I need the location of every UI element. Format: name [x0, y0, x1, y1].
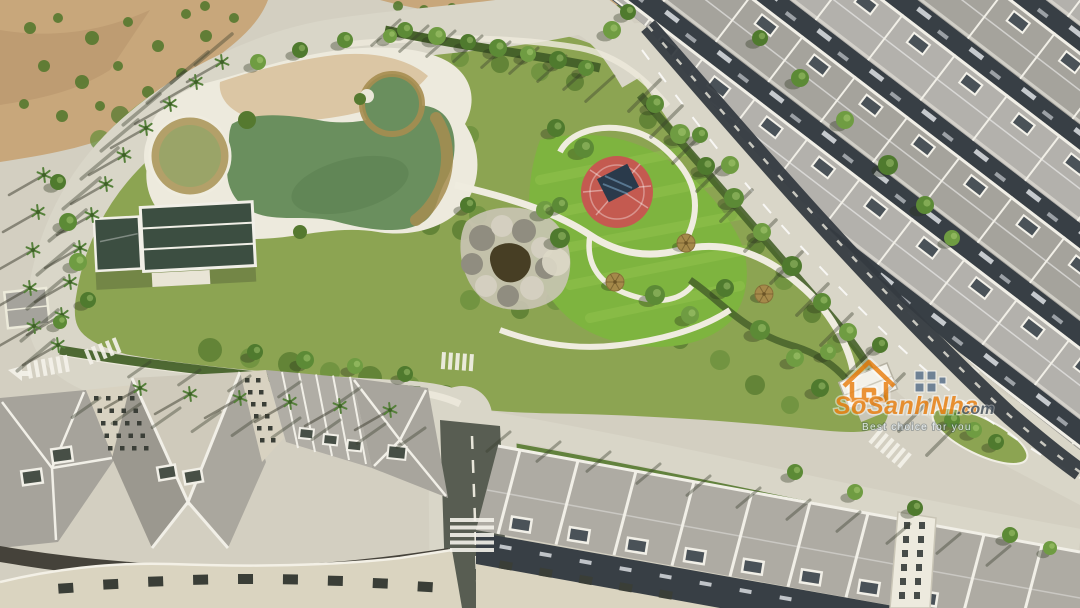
vegetation-cluster — [198, 338, 222, 362]
tree-highlight — [467, 200, 473, 206]
tree-highlight — [559, 200, 565, 206]
tree-highlight — [610, 24, 617, 31]
tree-highlight — [951, 233, 957, 239]
tree-highlight — [704, 160, 711, 167]
skylight — [299, 428, 314, 439]
dormer-window — [510, 517, 532, 533]
grotto-sand — [542, 248, 570, 276]
palm-crown — [68, 280, 72, 284]
vegetation-cluster — [745, 375, 765, 395]
terrace-opening — [148, 576, 163, 587]
small-window — [251, 402, 256, 407]
clubhouse-glass-roof — [140, 202, 255, 272]
terrace-opening — [238, 574, 253, 584]
grotto-rock — [491, 215, 513, 237]
white-tower — [890, 512, 936, 608]
shrub — [38, 60, 50, 72]
palm-crown — [188, 392, 192, 396]
shrub — [200, 30, 212, 42]
tree-highlight — [87, 295, 93, 301]
terrace-opening — [103, 579, 118, 590]
tree-highlight — [995, 437, 1001, 443]
dormer-window — [742, 559, 764, 575]
tree-highlight — [556, 54, 563, 61]
tree-canopy — [1043, 541, 1057, 555]
tree-highlight — [846, 326, 853, 333]
small-window — [256, 378, 261, 383]
zebra-bar — [450, 526, 494, 530]
palm-crown — [122, 153, 126, 157]
shrub — [53, 13, 63, 23]
tower-window — [917, 550, 923, 557]
tree-highlight — [1009, 530, 1015, 536]
small-window — [110, 409, 115, 414]
dormer-window — [858, 580, 880, 596]
tower-window — [900, 578, 906, 585]
tree-highlight — [582, 142, 590, 150]
tower-window — [918, 536, 924, 543]
tree-highlight — [793, 352, 800, 359]
tree-highlight — [723, 282, 730, 289]
watermark-domain: .com — [957, 401, 994, 418]
shrub — [56, 110, 68, 122]
tree-highlight — [827, 347, 833, 353]
small-window — [129, 434, 134, 439]
shrub — [229, 13, 239, 23]
palm-crown — [90, 213, 94, 217]
palm-crown — [288, 400, 292, 404]
grotto-rock — [461, 253, 483, 275]
tree-highlight — [467, 37, 473, 43]
skylight — [51, 447, 73, 464]
tree-highlight — [404, 369, 410, 375]
shrub — [393, 1, 403, 11]
tree-highlight — [303, 354, 310, 361]
grid-square — [927, 371, 936, 380]
palm-crown — [56, 343, 60, 347]
shrub — [24, 22, 36, 34]
palm-crown — [78, 246, 82, 250]
terrace-opening — [283, 574, 298, 584]
tree-highlight — [66, 216, 73, 223]
shrub — [152, 40, 164, 52]
dormer-window — [800, 569, 822, 585]
umbrella-pole — [684, 241, 688, 245]
small-window — [144, 446, 149, 451]
zebra-bar — [450, 541, 494, 545]
shrub — [75, 75, 89, 89]
small-window — [260, 438, 265, 443]
tower-window — [916, 564, 922, 571]
tower-window — [915, 578, 921, 585]
dormer-window — [568, 527, 590, 543]
terrace-opening — [193, 575, 208, 585]
tree-highlight — [344, 35, 350, 41]
tree-highlight — [879, 340, 885, 346]
shrub — [95, 101, 105, 111]
small-window — [259, 390, 264, 395]
tree-highlight — [854, 487, 860, 493]
grid-square — [915, 383, 924, 392]
shrub — [85, 31, 99, 45]
palm-crown — [104, 182, 108, 186]
small-window — [262, 402, 267, 407]
tree-highlight — [886, 159, 894, 167]
aerial-photo: SoSanhNha .com Best choice for you — [0, 0, 1080, 608]
small-window — [125, 421, 130, 426]
grid-square — [915, 371, 924, 380]
shrub — [19, 99, 29, 109]
palm-crown — [144, 126, 148, 130]
palm-crown — [28, 286, 32, 290]
tree-highlight — [732, 192, 740, 200]
grotto-rock — [497, 285, 519, 307]
skylight — [183, 469, 203, 485]
tree-canopy — [53, 315, 67, 329]
clubhouse-west-wing — [94, 217, 142, 271]
tree-highlight — [76, 256, 83, 263]
tree-highlight — [820, 296, 827, 303]
palm-crown — [238, 396, 242, 400]
grotto-rock — [475, 275, 497, 297]
tower-window — [899, 592, 905, 599]
skylight — [323, 434, 338, 445]
terrace-opening — [58, 583, 74, 594]
grotto-rock — [469, 225, 495, 251]
zebra-bar — [450, 533, 494, 537]
tree-highlight — [973, 425, 979, 431]
tree-highlight — [254, 347, 260, 353]
tree-highlight — [389, 31, 395, 37]
tower-window — [919, 522, 925, 529]
small-window — [268, 426, 273, 431]
grid-square — [927, 383, 936, 392]
tree-highlight — [257, 57, 263, 63]
tree-highlight — [496, 42, 503, 49]
small-window — [122, 409, 127, 414]
dormer-window — [626, 538, 648, 554]
shrub — [113, 61, 123, 71]
small-window — [98, 409, 103, 414]
small-window — [137, 421, 142, 426]
umbrella-pole — [613, 280, 617, 284]
tree-highlight — [699, 130, 705, 136]
palm-crown — [220, 60, 224, 64]
tree-highlight — [798, 72, 805, 79]
tree-highlight — [678, 128, 686, 136]
umbrella-pole — [762, 292, 766, 296]
small-window — [120, 446, 125, 451]
small-window — [108, 446, 113, 451]
tree-highlight — [558, 232, 566, 240]
zebra-bar — [450, 548, 494, 552]
dormer-window — [684, 548, 706, 564]
tower-window — [901, 564, 907, 571]
skylight — [157, 465, 177, 481]
palm-crown — [42, 173, 46, 177]
palm-crown — [168, 102, 172, 106]
tree-highlight — [554, 122, 561, 129]
terrace-opening — [373, 578, 388, 589]
tree-highlight — [653, 98, 660, 105]
promenade-planter — [293, 225, 307, 239]
palm-crown — [31, 248, 35, 252]
tree-highlight — [923, 199, 930, 206]
pond-plant-island — [238, 111, 256, 129]
palm-crown — [138, 386, 142, 390]
watermark-tagline: Best choice for you — [862, 422, 972, 433]
small-window — [105, 434, 110, 439]
grid-square — [939, 377, 946, 384]
palm-crown — [36, 210, 40, 214]
zebra-bar — [450, 518, 494, 522]
grotto-rock — [520, 276, 544, 300]
tree-highlight — [914, 503, 920, 509]
tree-highlight — [688, 309, 695, 316]
small-window — [248, 390, 253, 395]
round-pool-water — [159, 125, 221, 187]
pond-plant-island-2 — [354, 93, 366, 105]
tree-highlight — [627, 7, 633, 13]
tree-highlight — [527, 49, 533, 55]
tree-highlight — [354, 361, 360, 367]
skylight — [21, 469, 43, 486]
tree-highlight — [585, 63, 591, 69]
tree-highlight — [843, 114, 850, 121]
shrub — [181, 9, 191, 19]
palm-crown — [338, 404, 342, 408]
grotto-rock — [512, 219, 536, 243]
tree-highlight — [728, 159, 735, 166]
tree-highlight — [59, 317, 65, 323]
small-window — [141, 434, 146, 439]
small-window — [130, 396, 135, 401]
palm-crown — [32, 324, 36, 328]
tree-highlight — [790, 260, 798, 268]
tree-highlight — [758, 324, 766, 332]
playground — [581, 156, 653, 228]
tree-highlight — [760, 226, 767, 233]
tree-highlight — [1049, 543, 1055, 549]
aerial-photo-stage: SoSanhNha .com Best choice for you — [0, 0, 1080, 608]
palm-crown — [388, 408, 392, 412]
small-window — [132, 446, 137, 451]
small-window — [101, 421, 106, 426]
palm-crown — [194, 80, 198, 84]
tree-highlight — [794, 467, 800, 473]
small-window — [257, 426, 262, 431]
tree-highlight — [759, 33, 765, 39]
vegetation-cluster — [781, 396, 799, 414]
tree-highlight — [404, 25, 410, 31]
tree-highlight — [653, 289, 661, 297]
terrace-opening — [328, 576, 343, 586]
shrub — [123, 17, 133, 27]
shrub — [200, 1, 210, 11]
tree-highlight — [299, 45, 305, 51]
tower-window — [902, 550, 908, 557]
tree-highlight — [818, 382, 825, 389]
small-window — [106, 396, 111, 401]
vegetation-cluster — [710, 350, 730, 370]
tree-canopy — [383, 29, 397, 43]
small-window — [117, 434, 122, 439]
terrace-opening — [417, 581, 433, 592]
tower-window — [903, 536, 909, 543]
tower-window — [914, 592, 920, 599]
tree-highlight — [435, 30, 442, 37]
tree-highlight — [57, 177, 63, 183]
